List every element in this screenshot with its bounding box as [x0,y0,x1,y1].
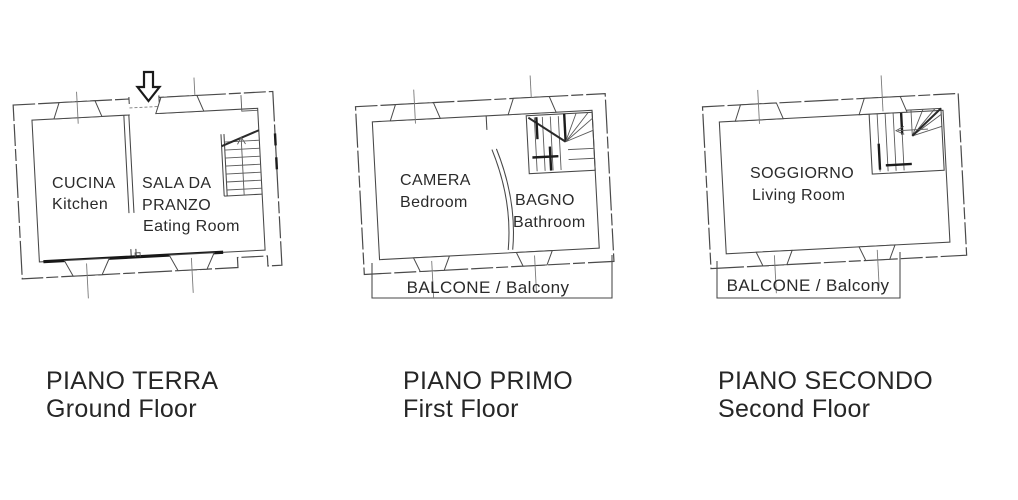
window-bottom-left [64,258,111,299]
bedroom-label-en: Bedroom [400,194,468,211]
window-top-left [734,89,784,125]
floor-panel-second: SOGGIORNO Living Room BALCONE / Balcony [690,50,1000,315]
floor-title-en: Ground Floor [46,395,218,423]
staircase [221,130,262,196]
floor-title-en: First Floor [403,395,573,423]
divider-wall-curved [486,115,514,251]
floor-title-ground: PIANO TERRA Ground Floor [46,367,218,423]
balcony-label: BALCONE / Balcony [407,278,570,297]
dining-label-it-line2: PRANZO [142,197,211,214]
second-floor-walls [701,71,968,296]
floor-title-en: Second Floor [718,395,933,423]
floor-panel-ground: CUCINA Kitchen SALA DA PRANZO Eating Roo… [5,50,315,315]
dining-label-en: Eating Room [143,218,240,235]
divider-wall [124,115,136,257]
window-top-right [506,74,556,114]
kitchen-label-en: Kitchen [52,196,108,213]
window-top-right [154,77,204,113]
window-top-left [389,88,441,125]
living-label-en: Living Room [752,187,845,204]
floor-title-it: PIANO TERRA [46,367,218,395]
balcony-label: BALCONE / Balcony [727,276,890,295]
floor-title-it: PIANO SECONDO [718,367,933,395]
window-top-right [857,74,907,114]
first-floor-walls [354,72,615,302]
kitchen-label-it: CUCINA [52,175,116,192]
staircase [526,112,595,173]
bathroom-label-it: BAGNO [515,192,575,209]
second-floor-plan: SOGGIORNO Living Room BALCONE / Balcony [690,50,1000,310]
living-label-it: SOGGIORNO [750,165,854,182]
floor-panel-first: CAMERA Bedroom BAGNO Bathroom BALCONE / … [345,50,655,315]
ground-floor-plan: CUCINA Kitchen SALA DA PRANZO Eating Roo… [5,50,315,310]
first-floor-plan: CAMERA Bedroom BAGNO Bathroom BALCONE / … [345,50,655,310]
floor-title-it: PIANO PRIMO [403,367,573,395]
window-bottom-right [169,253,216,294]
bathroom-label-en: Bathroom [513,214,586,231]
staircase [869,108,944,174]
window-top-left [53,90,103,124]
floorplan-sheet: CUCINA Kitchen SALA DA PRANZO Eating Roo… [0,0,1018,500]
dining-label-it-line1: SALA DA [142,175,212,192]
floor-title-first: PIANO PRIMO First Floor [403,367,573,423]
bedroom-label-it: CAMERA [400,172,471,189]
floor-title-second: PIANO SECONDO Second Floor [718,367,933,423]
